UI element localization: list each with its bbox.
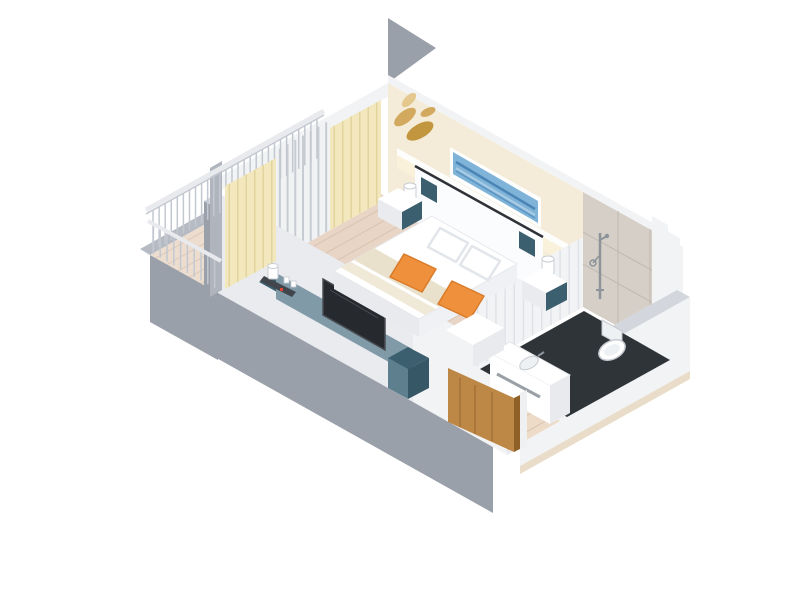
- console-end-unit: [388, 347, 429, 399]
- isometric-room-svg: [0, 0, 800, 600]
- cup-icon: [284, 277, 289, 283]
- door-edge: [514, 395, 520, 452]
- shower-head-icon: [605, 234, 609, 238]
- kettle-indicator: [280, 288, 283, 291]
- cup-icon: [291, 281, 296, 287]
- door-jamb: [520, 390, 527, 449]
- floorplan-render: [0, 0, 800, 600]
- kettle-lid: [268, 264, 278, 269]
- lamp-top: [404, 183, 416, 189]
- lamp-top: [542, 256, 554, 262]
